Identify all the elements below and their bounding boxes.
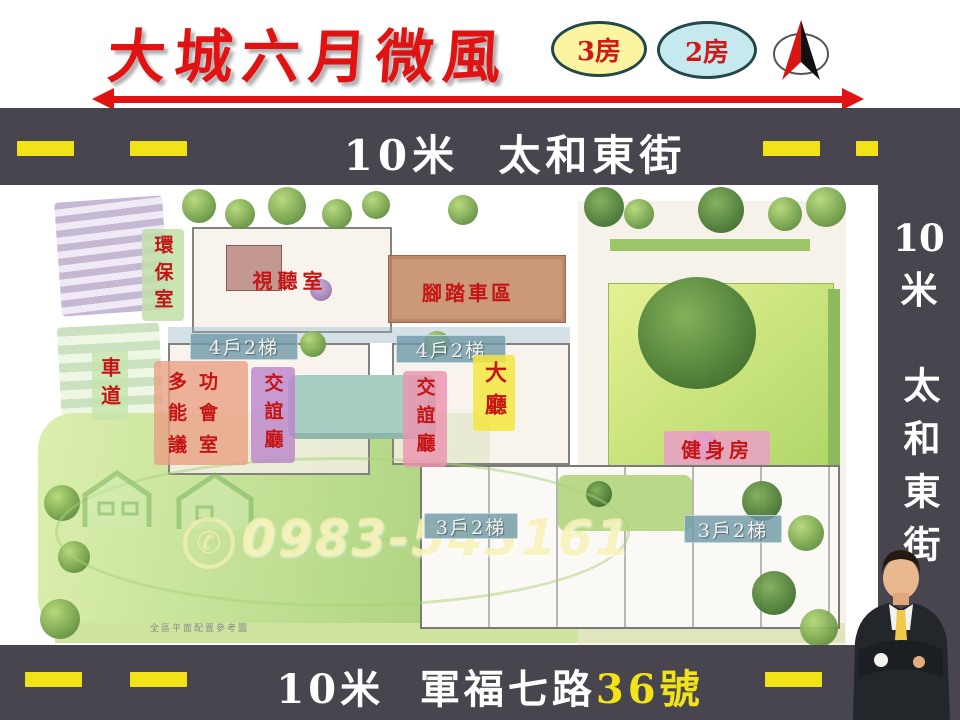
street-name-bottom: 10米 軍福七路36號	[0, 657, 960, 715]
slide-canvas: 大城六月微風 3房 2房	[0, 0, 960, 720]
north-compass-icon	[770, 16, 836, 88]
label-lobby: 大廳	[473, 355, 515, 431]
street-number: 36號	[596, 666, 704, 713]
tree	[40, 599, 80, 639]
tree	[182, 189, 216, 223]
tree	[58, 541, 90, 573]
tree	[584, 187, 624, 227]
plan-caption: 全區平面配置參考圖	[150, 621, 249, 634]
tree	[362, 191, 390, 219]
tree	[624, 199, 654, 229]
label-recycle-room: 環保室	[142, 229, 184, 321]
label-lounge-center: 交誼廳	[403, 371, 447, 467]
tree	[44, 485, 80, 521]
arrow-bar	[106, 96, 850, 103]
tree	[268, 187, 306, 225]
badge-3-room: 3房	[551, 21, 647, 77]
label-3units-2lifts-left: 3戶2梯	[424, 513, 518, 539]
tree	[225, 199, 255, 229]
garden-small	[558, 475, 692, 531]
tree	[806, 187, 846, 227]
tree	[300, 331, 326, 357]
road-width-number: 10	[893, 216, 945, 260]
tree	[788, 515, 824, 551]
hedge	[610, 239, 810, 251]
badge-2-room: 2房	[657, 21, 757, 79]
site-plan: ✆ 0983-543161 環保室 視聽室 腳踏車區 4戶2梯 4戶2梯 車道 …	[0, 185, 878, 645]
tree	[698, 187, 744, 233]
tree	[752, 571, 796, 615]
label-4units-2lifts-left: 4戶2梯	[190, 333, 298, 360]
tree	[322, 199, 352, 229]
big-tree	[638, 277, 756, 389]
width-arrow	[92, 88, 864, 110]
badge-3-room-label: 3房	[577, 31, 621, 68]
road-width-unit: 米	[901, 260, 938, 314]
arrow-right-head-icon	[842, 88, 864, 110]
bush	[586, 481, 612, 507]
street-name-right: 10 米 太和東街	[878, 216, 960, 578]
road-bottom: 10米 軍福七路36號	[0, 645, 960, 720]
tree	[768, 197, 802, 231]
label-meeting-room: 多功能會議室	[154, 361, 248, 465]
street-name-top: 10米 太和東街	[0, 122, 960, 183]
label-gym: 健身房	[664, 431, 770, 465]
badge-2-room-label: 2房	[685, 32, 729, 69]
label-3units-2lifts-right: 3戶2梯	[684, 515, 782, 543]
label-lounge-west: 交誼廳	[251, 367, 295, 463]
project-title: 大城六月微風	[105, 10, 513, 94]
tree	[448, 195, 478, 225]
label-bike-area: 腳踏車區	[398, 277, 538, 305]
agent-photo	[843, 546, 960, 720]
label-av-room: 視聽室	[230, 265, 350, 293]
tree	[800, 609, 838, 647]
street-name-bottom-text: 10米 軍福七路	[276, 666, 596, 713]
label-driveway: 車道	[92, 350, 128, 420]
road-top: 10米 太和東街	[0, 108, 960, 185]
